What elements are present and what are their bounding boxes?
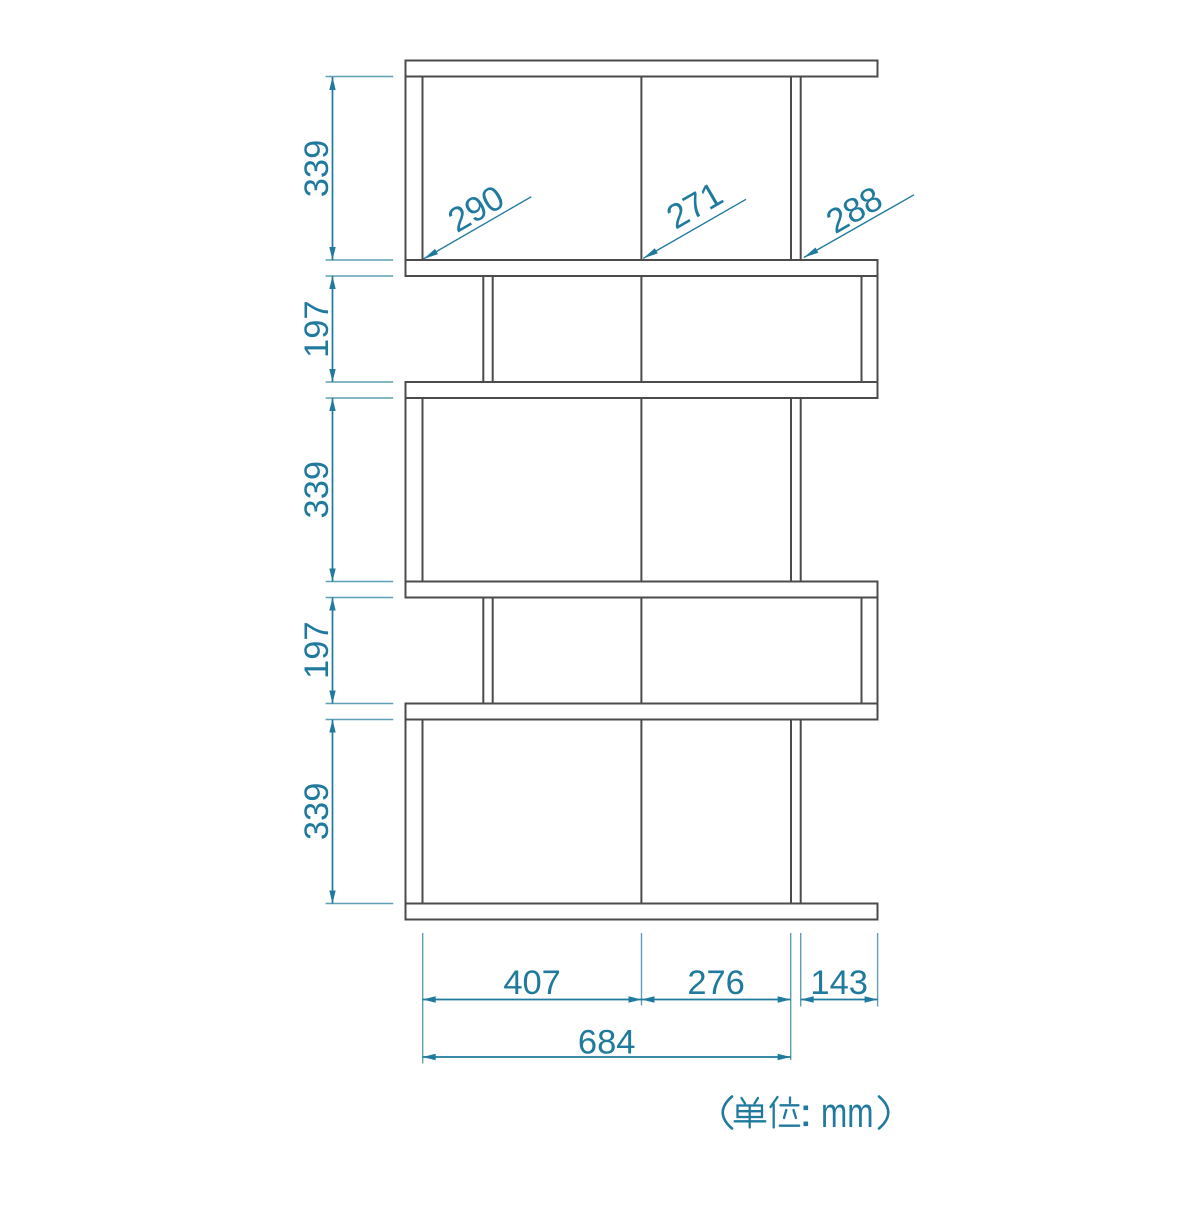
svg-text:339: 339 (298, 783, 336, 841)
svg-text:mm: mm (821, 1089, 874, 1136)
svg-text:407: 407 (503, 964, 561, 1002)
svg-text:143: 143 (810, 964, 868, 1002)
svg-text:197: 197 (298, 621, 336, 679)
svg-text:197: 197 (298, 300, 336, 358)
svg-text:339: 339 (298, 140, 336, 198)
svg-text:684: 684 (578, 1024, 636, 1062)
svg-text:339: 339 (298, 461, 336, 519)
svg-text:276: 276 (687, 964, 745, 1002)
